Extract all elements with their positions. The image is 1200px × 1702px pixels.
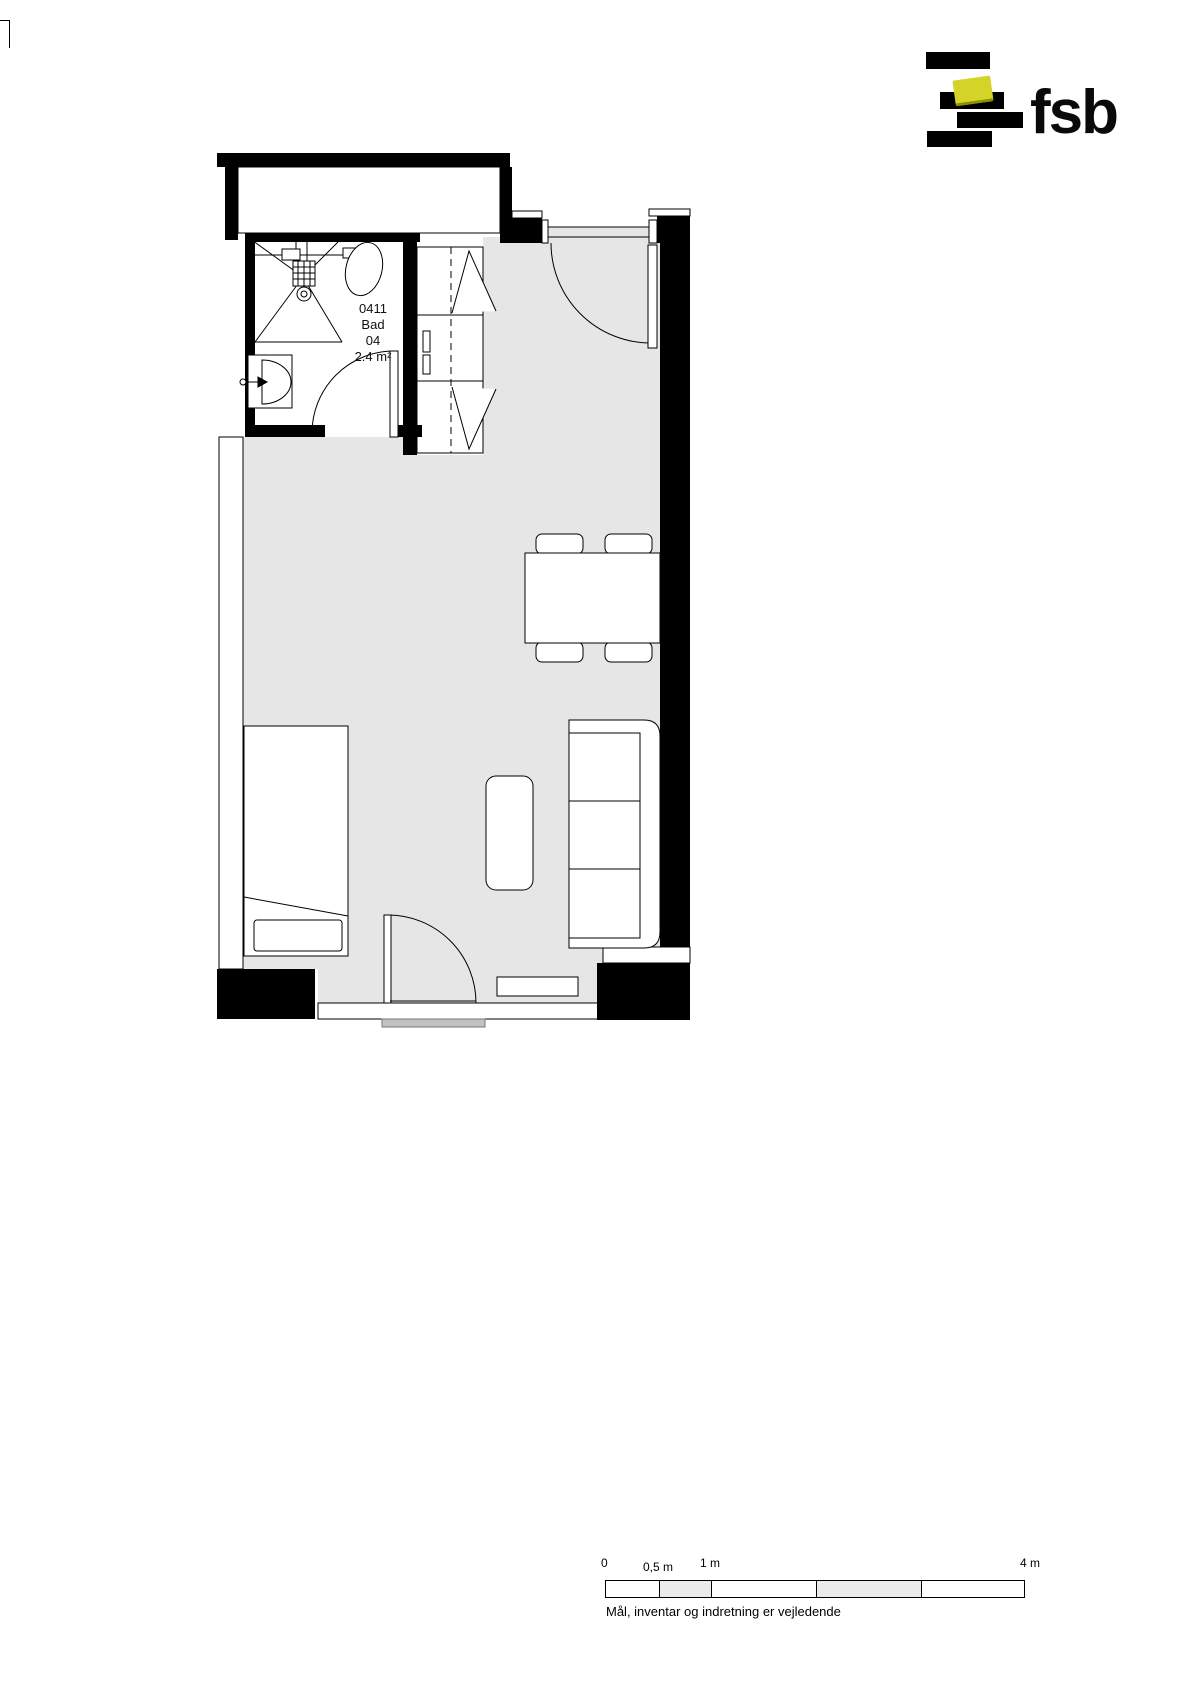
wall-niche-right bbox=[500, 167, 512, 243]
window-panel bbox=[497, 977, 578, 996]
logo-accent-block bbox=[952, 75, 993, 106]
scale-segment bbox=[816, 1581, 921, 1597]
pillow bbox=[254, 920, 342, 951]
sink bbox=[240, 355, 292, 408]
wall-top bbox=[217, 153, 510, 167]
scale-note: Mål, inventar og indretning er vejledend… bbox=[606, 1604, 841, 1619]
sofa-seats bbox=[569, 733, 640, 938]
wall-bottom-right bbox=[597, 963, 690, 1020]
wall-right bbox=[660, 216, 690, 947]
scale-bar-ruler bbox=[605, 1580, 1025, 1598]
window-sill bbox=[603, 947, 690, 963]
door-jamb bbox=[542, 220, 548, 243]
scale-tick bbox=[921, 1581, 922, 1597]
page: fsb bbox=[0, 0, 1200, 1702]
bed bbox=[244, 726, 348, 956]
dining-chair bbox=[605, 534, 652, 554]
logo-bar bbox=[957, 112, 1023, 128]
room-unit: 04 bbox=[333, 333, 413, 349]
logo-bar bbox=[926, 52, 990, 69]
faucet bbox=[240, 379, 246, 385]
scale-tick-label: 1 m bbox=[686, 1556, 734, 1570]
coffee-table bbox=[486, 776, 533, 890]
wall-niche bbox=[238, 167, 500, 233]
lintel bbox=[512, 211, 542, 218]
shower-valve bbox=[282, 249, 300, 260]
door-leaf bbox=[648, 245, 657, 348]
logo-text: fsb bbox=[1030, 82, 1117, 144]
scale-tick-label: 0,5 m bbox=[634, 1560, 682, 1574]
dining-chair bbox=[605, 642, 652, 662]
logo-bar bbox=[927, 131, 992, 147]
dining-chair bbox=[536, 642, 583, 662]
scale-tick bbox=[816, 1581, 817, 1597]
scale-tick bbox=[711, 1581, 712, 1597]
room-label: 0411 Bad 04 2.4 m² bbox=[333, 301, 413, 365]
dining-set bbox=[525, 534, 660, 662]
wall-bath-top bbox=[245, 233, 420, 242]
wardrobe-shelf bbox=[423, 331, 430, 352]
room-area: 2.4 m² bbox=[333, 349, 413, 365]
scale-segment bbox=[659, 1581, 711, 1597]
wardrobe-shelf bbox=[423, 355, 430, 374]
wall-bottom-left bbox=[217, 969, 315, 1019]
room-number: 0411 bbox=[333, 301, 413, 317]
scale-tick-label: 0 bbox=[601, 1556, 608, 1570]
lintel bbox=[649, 209, 690, 216]
wall-niche-left bbox=[225, 167, 238, 240]
wall-entry bbox=[512, 218, 542, 243]
scale-tick bbox=[659, 1581, 660, 1597]
room-name: Bad bbox=[333, 317, 413, 333]
dining-chair bbox=[536, 534, 583, 554]
dining-table bbox=[525, 553, 660, 643]
wall-bath-bottom bbox=[245, 425, 325, 437]
scale-tick-label: 4 m bbox=[1006, 1556, 1054, 1570]
door-leaf bbox=[384, 915, 391, 1003]
corner-trim-mark bbox=[9, 20, 10, 48]
left-wall bbox=[219, 437, 243, 969]
balcony-threshold bbox=[382, 1019, 485, 1027]
door-jamb bbox=[649, 220, 657, 243]
sofa bbox=[569, 720, 660, 948]
window-band bbox=[318, 1003, 598, 1019]
floor-plan bbox=[190, 140, 700, 1040]
